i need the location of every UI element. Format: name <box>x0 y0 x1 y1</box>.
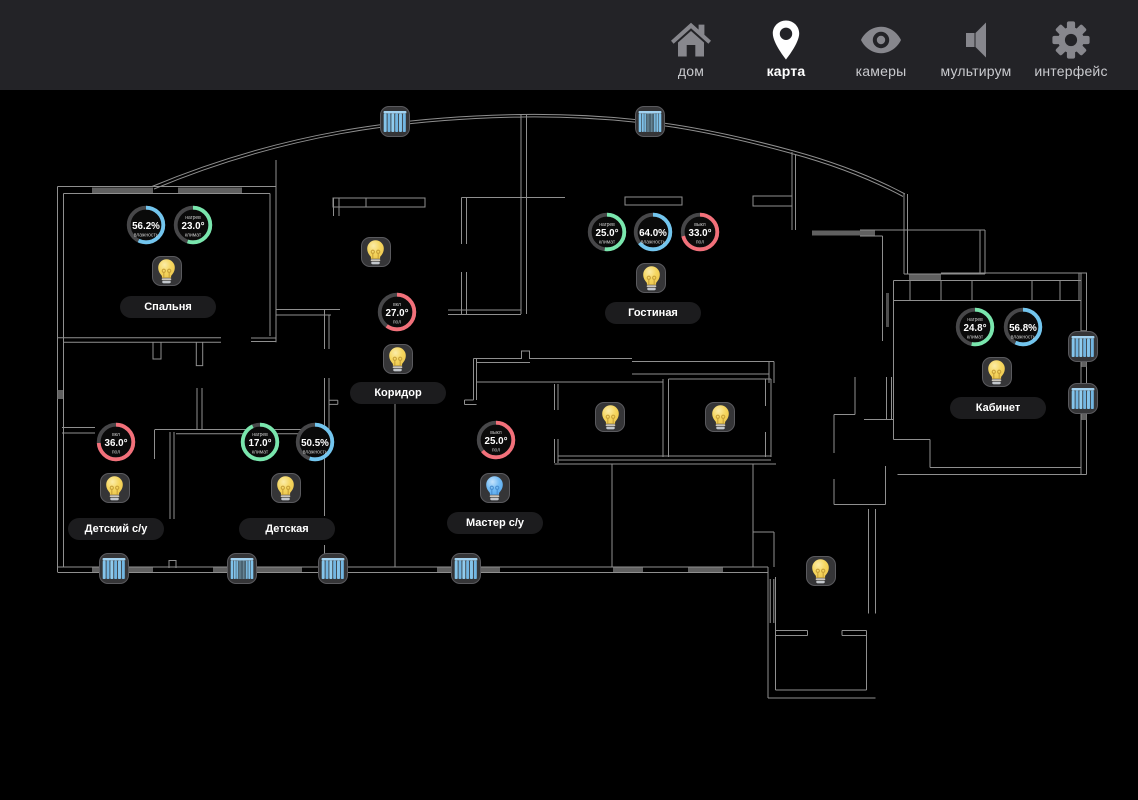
svg-text:50.5%: 50.5% <box>301 438 329 449</box>
svg-text:23.0°: 23.0° <box>182 221 205 232</box>
svg-text:влажность: влажность <box>641 239 666 245</box>
svg-text:56.2%: 56.2% <box>132 221 160 232</box>
svg-text:пол: пол <box>112 450 120 456</box>
svg-text:влажность: влажность <box>1011 334 1036 340</box>
svg-text:33.0°: 33.0° <box>688 228 711 239</box>
svg-text:климат: климат <box>598 239 615 245</box>
svg-text:пол: пол <box>393 320 401 326</box>
svg-text:пол: пол <box>695 239 703 245</box>
svg-text:36.0°: 36.0° <box>105 438 128 449</box>
svg-text:56.8%: 56.8% <box>1009 323 1037 334</box>
svg-text:климат: климат <box>252 450 269 456</box>
svg-text:пол: пол <box>492 448 500 454</box>
svg-text:27.0°: 27.0° <box>386 308 409 319</box>
svg-text:влажность: влажность <box>303 450 328 456</box>
svg-text:25.0°: 25.0° <box>595 228 618 239</box>
svg-text:25.0°: 25.0° <box>485 436 508 447</box>
svg-text:климат: климат <box>967 334 984 340</box>
svg-text:влажность: влажность <box>134 233 159 239</box>
svg-text:климат: климат <box>185 233 202 239</box>
svg-text:17.0°: 17.0° <box>249 438 272 449</box>
svg-text:64.0%: 64.0% <box>639 228 667 239</box>
svg-text:24.8°: 24.8° <box>964 323 987 334</box>
